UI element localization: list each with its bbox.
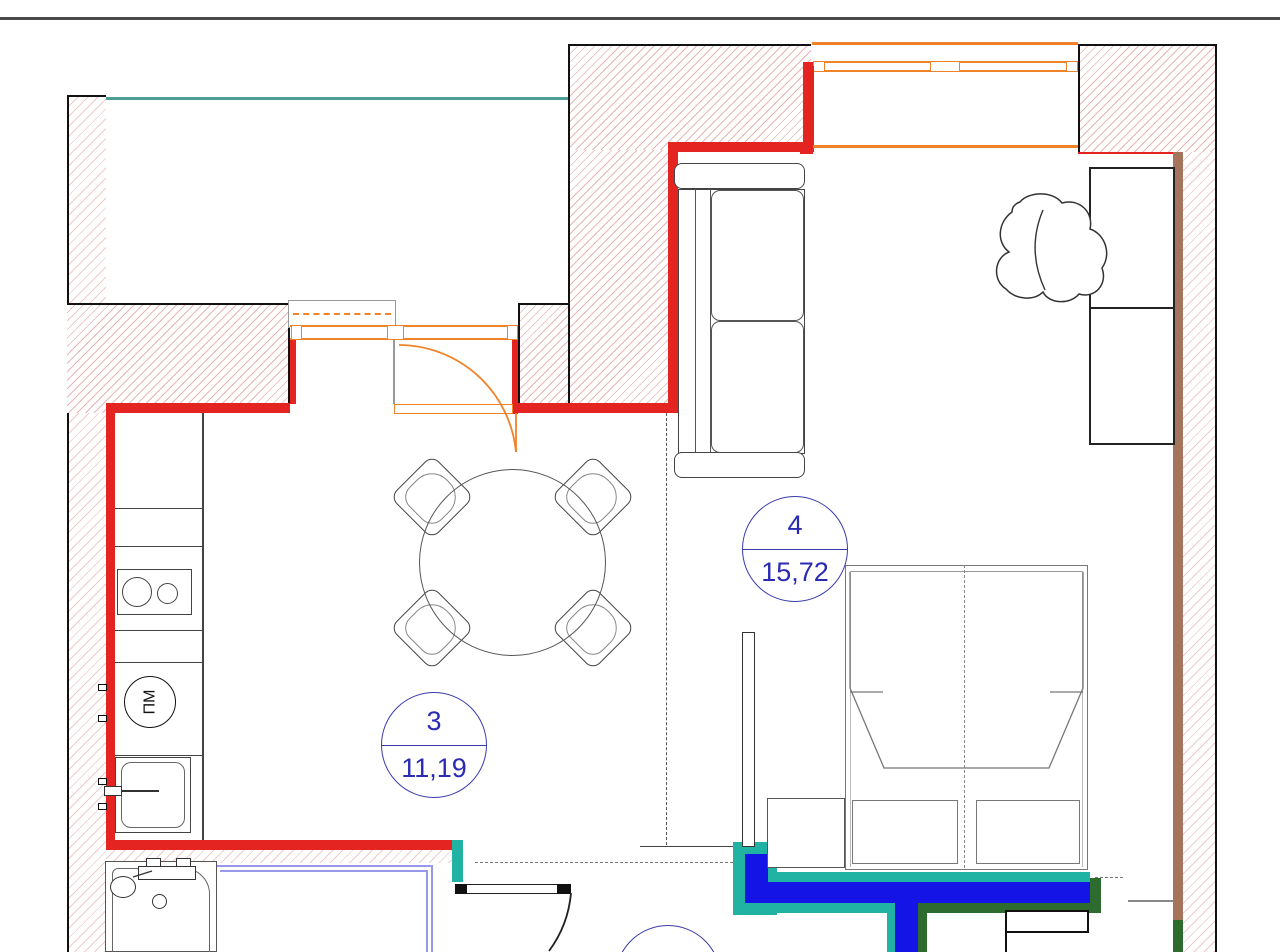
room-area: 15,72 bbox=[743, 551, 847, 593]
floor-plan-canvas: ПМ 4 15,72 3 11,19 bbox=[0, 0, 1280, 952]
window-sill-box bbox=[288, 300, 396, 328]
duct-outline-bottom-right bbox=[1005, 910, 1089, 933]
partition-teal-stem-left bbox=[887, 903, 895, 952]
wall-below-balcony bbox=[67, 303, 290, 413]
sofa-cushion-2 bbox=[711, 321, 804, 453]
room-label-divider bbox=[743, 549, 847, 550]
partition-green-end bbox=[1090, 878, 1101, 913]
bed-pillow-left bbox=[852, 800, 958, 864]
kitchen-counter-edge bbox=[202, 413, 204, 840]
bath-mixer-handle-left bbox=[146, 858, 161, 867]
window-right-mullion-left bbox=[813, 61, 825, 72]
bath-door-hinge-right bbox=[557, 884, 571, 894]
stove-burner-large bbox=[122, 577, 152, 607]
wardrobe bbox=[1089, 167, 1175, 445]
zone-divider-vertical-dashed bbox=[666, 413, 667, 845]
bed-centerline-dashed bbox=[964, 565, 965, 868]
room-area: 11,19 bbox=[382, 747, 486, 789]
window-left-mullion-left bbox=[291, 325, 302, 340]
sill-dashed-line bbox=[293, 313, 391, 315]
kitchen-counter-div1 bbox=[115, 508, 202, 509]
page-border-line bbox=[0, 17, 1280, 20]
window-left-mullion-center bbox=[387, 325, 404, 340]
sink-faucet bbox=[104, 786, 122, 796]
dining-table bbox=[419, 469, 606, 656]
room-label-3: 3 11,19 bbox=[381, 692, 487, 798]
balcony-glazing-line bbox=[106, 97, 568, 100]
window-left-jamb-right bbox=[512, 340, 518, 414]
kitchen-counter-div2 bbox=[115, 546, 202, 547]
room-number: 4 bbox=[743, 503, 847, 547]
window-left-jamb-left bbox=[290, 340, 296, 404]
wall-left-exterior bbox=[67, 95, 106, 952]
partition-blue-stem bbox=[895, 903, 918, 952]
partition-green-stem-right bbox=[918, 903, 927, 952]
room-label-4: 4 15,72 bbox=[742, 496, 848, 602]
wall-top-center-upper bbox=[568, 44, 811, 152]
window-left-divider bbox=[393, 340, 395, 404]
stove-burner-small bbox=[157, 583, 178, 604]
opening-line-right bbox=[1128, 900, 1173, 902]
partition-screen bbox=[742, 632, 755, 847]
wall-top-right bbox=[1078, 44, 1217, 152]
bed-pillow-right bbox=[976, 800, 1080, 864]
nightstand bbox=[767, 798, 845, 868]
room-label-partial-bottom bbox=[615, 925, 721, 952]
corridor-dashed-line bbox=[475, 862, 733, 863]
red-face-livingroom-top bbox=[668, 142, 813, 152]
wardrobe-divider bbox=[1091, 307, 1173, 309]
sofa-backrest-line1 bbox=[695, 189, 696, 454]
window-right-jamb-left bbox=[808, 66, 814, 152]
partition-teal-bottom bbox=[777, 903, 887, 913]
wall-right-exterior bbox=[1183, 152, 1217, 952]
outlet-2 bbox=[98, 715, 107, 722]
bath-mixer-body bbox=[138, 866, 196, 880]
outlet-4 bbox=[98, 803, 107, 810]
bath-door-hinge-left bbox=[455, 884, 467, 894]
bath-door-jamb-block bbox=[452, 840, 463, 882]
window-right-mullion-right bbox=[1066, 61, 1078, 72]
duct-line-bottom-right bbox=[1005, 932, 1007, 952]
red-stub-left bbox=[800, 145, 813, 154]
room-label-divider bbox=[382, 745, 486, 746]
red-wall-kitchen-left bbox=[106, 403, 115, 850]
sink-faucet-pipe bbox=[122, 790, 159, 792]
window-right-mullion-center bbox=[930, 61, 960, 72]
sink-inner bbox=[121, 762, 185, 828]
red-wall-kitchen-top-left bbox=[106, 403, 290, 413]
partition-teal-top bbox=[777, 872, 1090, 882]
opening-dashed-right bbox=[1095, 877, 1123, 878]
partition-blue-horizontal bbox=[745, 882, 1090, 903]
kitchen-counter-div5 bbox=[115, 755, 202, 756]
wall-right-of-window bbox=[518, 303, 568, 413]
kitchen-counter-div3 bbox=[115, 630, 202, 631]
red-wall-kitchen-top-right bbox=[518, 403, 678, 413]
outlet-3 bbox=[98, 778, 107, 785]
wall-top-center-column bbox=[568, 150, 668, 413]
sofa-armrest-bottom bbox=[674, 452, 805, 478]
kitchen-counter-div4 bbox=[115, 662, 202, 663]
window-right-outer-line bbox=[812, 42, 1078, 45]
window-left-mullion-right bbox=[507, 325, 518, 340]
bath-shower-head bbox=[110, 876, 136, 898]
bath-mixer-handle-right bbox=[176, 858, 191, 867]
sofa-cushion-1 bbox=[711, 190, 804, 321]
wall-finish-green-strip bbox=[1173, 920, 1183, 952]
corridor-solid-line bbox=[640, 846, 733, 847]
bath-spout bbox=[152, 894, 167, 909]
bath-door-leaf bbox=[455, 884, 571, 894]
window-right-inner-line bbox=[813, 145, 1078, 148]
dishwasher-label: ПМ bbox=[141, 690, 159, 715]
window-left-frame bbox=[290, 325, 518, 340]
red-wall-kitchen-bottom bbox=[106, 840, 453, 850]
sofa-armrest-top bbox=[674, 163, 805, 189]
balcony-door-threshold bbox=[394, 404, 513, 414]
balcony-door-swing-arc bbox=[399, 345, 516, 452]
plant-cleft bbox=[1035, 210, 1045, 290]
bath-door-swing-arc bbox=[549, 893, 571, 951]
outlet-1 bbox=[98, 684, 107, 691]
dishwasher-circle: ПМ bbox=[124, 676, 176, 728]
room-number: 3 bbox=[382, 699, 486, 743]
bath-zone-purple-inner bbox=[220, 870, 428, 952]
